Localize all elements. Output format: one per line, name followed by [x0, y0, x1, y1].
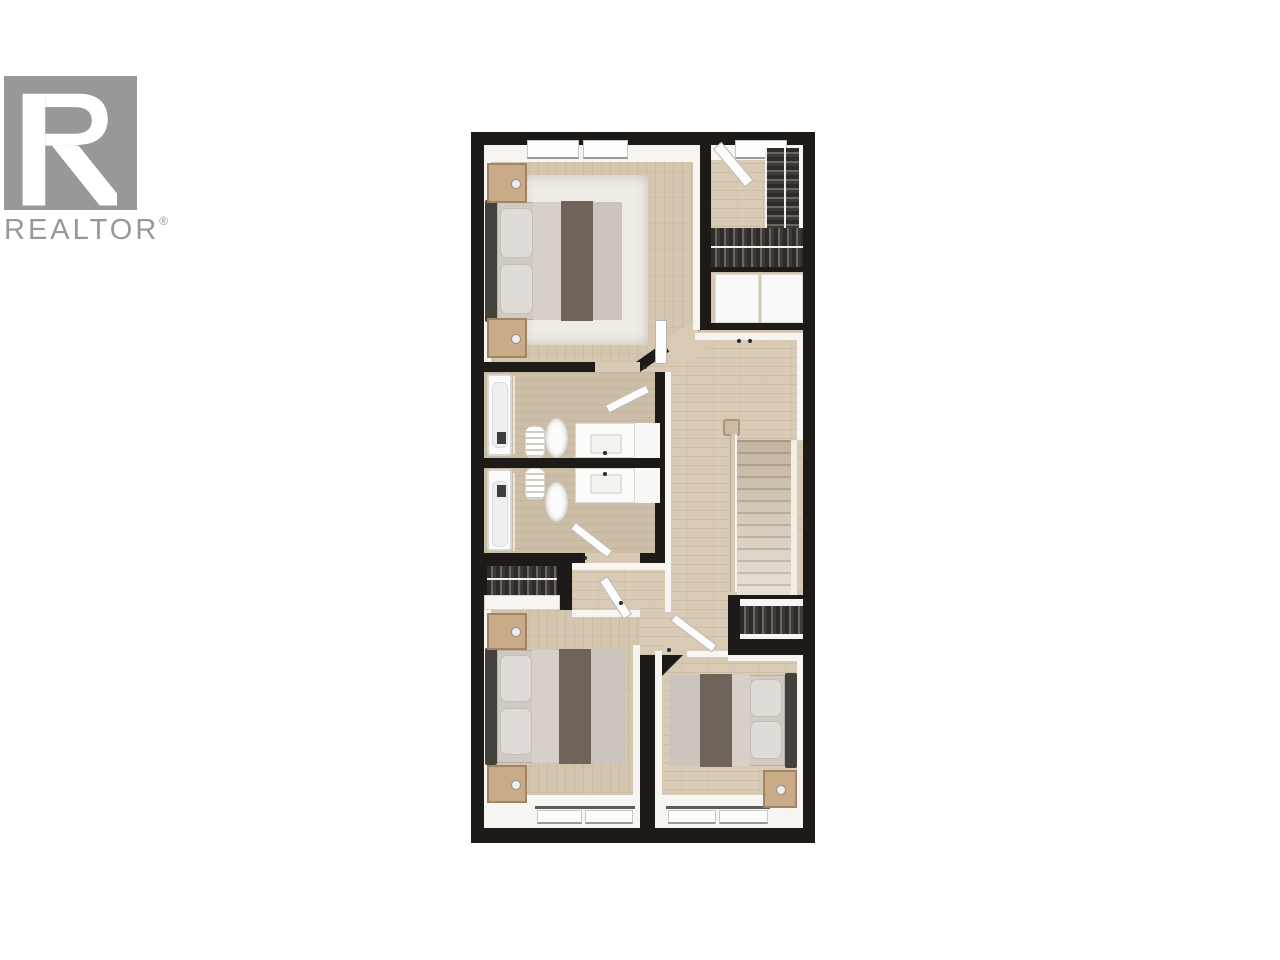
towel: [525, 426, 545, 458]
towel: [525, 468, 545, 500]
knob: [511, 627, 521, 637]
door-hinge: [667, 648, 671, 652]
closet-rod: [487, 578, 557, 580]
floor-plan-image: [471, 132, 815, 843]
toilet: [545, 482, 568, 522]
toilet: [545, 418, 568, 458]
realtor-r-glyph: [4, 76, 137, 210]
cabinet: [715, 274, 759, 323]
realtor-wordmark-text: REALTOR: [4, 214, 159, 246]
staircase: [737, 440, 797, 595]
door-hinge: [619, 601, 623, 605]
closet-rod: [784, 148, 786, 234]
window: [583, 140, 628, 159]
hanging-clothes: [767, 148, 799, 234]
nightstand: [487, 613, 527, 650]
knob: [511, 780, 521, 790]
linen-closet: [728, 595, 803, 655]
listing-photo-page: REALTOR®: [0, 0, 1280, 960]
door-handle: [748, 339, 752, 343]
closet-rod: [711, 246, 803, 248]
tub-faucet: [497, 485, 506, 497]
vanity: [575, 468, 635, 503]
headboard: [785, 673, 797, 768]
cabinet: [761, 274, 803, 323]
wall-face: [797, 655, 803, 795]
wall-face: [633, 645, 640, 795]
bathtub: [487, 374, 512, 456]
pillow: [750, 679, 782, 717]
hanging-clothes: [740, 606, 803, 634]
bathtub: [487, 469, 512, 551]
door-handle: [737, 339, 741, 343]
bed-runner: [559, 649, 591, 764]
stair-railing: [730, 434, 737, 592]
sink: [590, 474, 622, 494]
tub-faucet: [497, 432, 506, 444]
realtor-r-icon: [4, 76, 137, 210]
door-opening: [585, 553, 640, 563]
door-hinge: [643, 365, 647, 369]
door-leaf: [655, 320, 667, 364]
wall-face: [687, 651, 728, 657]
bed-blanket: [591, 650, 625, 763]
shower-glass: [513, 473, 515, 551]
window: [537, 810, 582, 824]
realtor-logo: REALTOR®: [4, 76, 154, 247]
bed-blanket: [669, 675, 700, 766]
bed-sheet: [732, 675, 750, 766]
sink-faucet: [603, 472, 607, 476]
hanging-clothes: [487, 566, 557, 595]
door-hinge: [583, 556, 587, 560]
wall-face: [572, 563, 665, 570]
closet-trim: [740, 599, 803, 606]
door-opening: [595, 362, 640, 372]
bedroom-3-bed: [668, 673, 797, 768]
window: [527, 140, 579, 159]
vanity: [575, 423, 635, 458]
counter: [635, 423, 660, 458]
bedroom-2-bed: [485, 648, 625, 765]
nightstand: [763, 770, 797, 808]
bed-sheet: [533, 202, 561, 320]
nightstand: [487, 318, 527, 358]
pillow: [500, 208, 533, 258]
headboard: [485, 200, 497, 322]
window-frame: [535, 806, 635, 809]
nightstand: [487, 765, 527, 803]
wall-face: [728, 655, 803, 661]
window-frame: [666, 806, 770, 809]
knob: [511, 179, 521, 189]
wall-face: [655, 651, 662, 795]
shower-glass: [513, 376, 515, 454]
pillow: [500, 655, 532, 702]
bed-runner: [700, 674, 732, 767]
wall-face: [797, 333, 803, 440]
window: [719, 810, 768, 824]
wall-face: [693, 162, 700, 330]
realtor-wordmark: REALTOR®: [4, 214, 154, 247]
bed-blanket: [593, 202, 622, 320]
counter: [635, 468, 660, 503]
window: [585, 810, 633, 824]
master-bed: [485, 200, 622, 322]
closet-trim: [740, 634, 803, 639]
bed-runner: [561, 201, 593, 321]
registered-trademark: ®: [159, 214, 168, 228]
bed-sheet: [532, 650, 559, 763]
wall-face: [665, 372, 671, 612]
pillow: [500, 708, 532, 755]
sink-faucet: [603, 451, 607, 455]
knob: [511, 334, 521, 344]
nightstand: [487, 163, 527, 203]
knob: [776, 785, 786, 795]
pillow: [500, 264, 533, 314]
closet-door-track: [484, 595, 560, 610]
pillow: [750, 721, 782, 759]
headboard: [485, 648, 497, 765]
window: [668, 810, 716, 824]
